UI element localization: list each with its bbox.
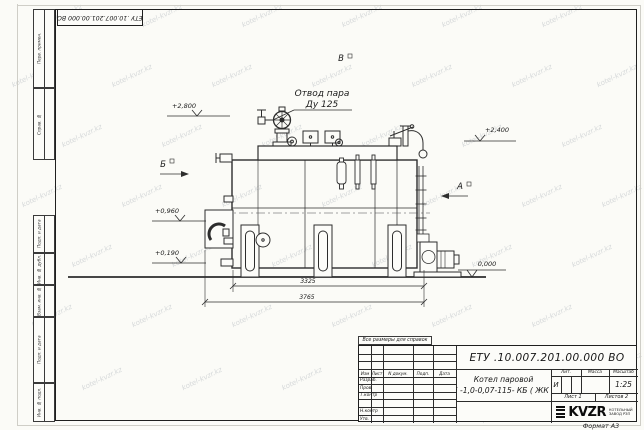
svg-text:3765: 3765: [299, 294, 314, 301]
svg-text:+0,190: +0,190: [155, 249, 179, 257]
logo-bars-icon: [556, 405, 565, 419]
tb-name-line2: Е -1,0-0,07-115- КБ ( ЖК ): [456, 385, 551, 396]
tb-col-list: Лист: [371, 369, 383, 377]
logo-caption: КОТЕЛЬНЫЙ ЗАВОД РЗП: [609, 408, 633, 417]
format-label: Формат А3: [563, 422, 639, 430]
view-label-a: А: [441, 182, 471, 199]
view-label-v: В: [338, 54, 352, 64]
tb-line: [359, 361, 456, 362]
tb-line: [359, 399, 456, 400]
tb-designation: ЕТУ .10.007.201.00.000 ВО: [456, 346, 638, 369]
svg-text:+2,400: +2,400: [485, 126, 509, 134]
elevation-mark-0190: +0,190: [152, 249, 206, 263]
elevation-mark-2800: +2,800: [167, 102, 230, 116]
tb-row-utv: Утв.: [359, 415, 384, 423]
tb-col-ndoc: N докум.: [383, 369, 413, 377]
tb-row-prov: Пров.: [359, 384, 384, 392]
tb-row-tkontr: Т.контр: [359, 392, 384, 399]
tb-company-cell: KVZR КОТЕЛЬНЫЙ ЗАВОД РЗП: [551, 401, 638, 423]
pressure-gauges: [288, 131, 343, 146]
front-door: [205, 153, 233, 266]
svg-text:Б: Б: [160, 160, 166, 170]
title-block: ЕТУ .10.007.201.00.000 ВО Котел паровой …: [358, 345, 637, 422]
svg-text:0,000: 0,000: [478, 260, 497, 268]
sight-glass: [256, 233, 270, 247]
fan-unit: [414, 234, 461, 277]
tb-row-razrab: Разраб.: [359, 377, 384, 384]
logo-text: KVZR: [568, 405, 606, 420]
reference-note: Все размеры для справок: [358, 336, 432, 345]
tb-col-podp: Подп.: [413, 369, 433, 377]
elevation-mark-2400: +2,400: [464, 126, 516, 141]
tb-name-line1: Котел паровой: [474, 374, 534, 385]
tb-lit-value: И: [551, 376, 561, 393]
svg-text:Отвод пара: Отвод пара: [295, 89, 350, 99]
tb-line: [571, 376, 572, 393]
tb-scale-value: 1:25: [609, 376, 638, 393]
tb-line: [561, 376, 562, 393]
steam-valve: [257, 107, 291, 146]
tb-scale-header: Масштаб: [609, 369, 638, 376]
tb-document-name: Котел паровой Е -1,0-0,07-115- КБ ( ЖК ): [456, 369, 551, 401]
tb-line: [359, 354, 456, 355]
svg-text:+2,800: +2,800: [172, 102, 196, 110]
elevation-mark-0960: +0,960: [152, 207, 206, 221]
steam-outlet-callout: Отвод пара Ду 125: [273, 89, 352, 120]
elevation-mark-0000: 0,000: [458, 260, 506, 277]
tb-row-nkontr: Н.контр: [359, 407, 384, 415]
tb-col-izm: Изм: [359, 369, 371, 377]
svg-text:А: А: [456, 182, 463, 192]
tb-sheets: Листов 2: [595, 393, 638, 401]
kvzr-logo: KVZR КОТЕЛЬНЫЙ ЗАВОД РЗП: [556, 405, 632, 420]
tb-lit-header: Лит.: [551, 369, 581, 376]
tb-mass-header: Масса: [581, 369, 609, 376]
svg-text:В: В: [338, 54, 344, 64]
tb-col-data: Дата: [433, 369, 456, 377]
tb-sheet: Лист 1: [551, 393, 595, 401]
svg-text:Ду 125: Ду 125: [305, 100, 339, 110]
logo-caption-line2: ЗАВОД РЗП: [609, 412, 630, 416]
svg-text:+0,960: +0,960: [155, 207, 179, 215]
support-legs: [241, 225, 406, 277]
svg-text:3325: 3325: [300, 278, 315, 285]
view-label-b: Б: [160, 159, 189, 177]
